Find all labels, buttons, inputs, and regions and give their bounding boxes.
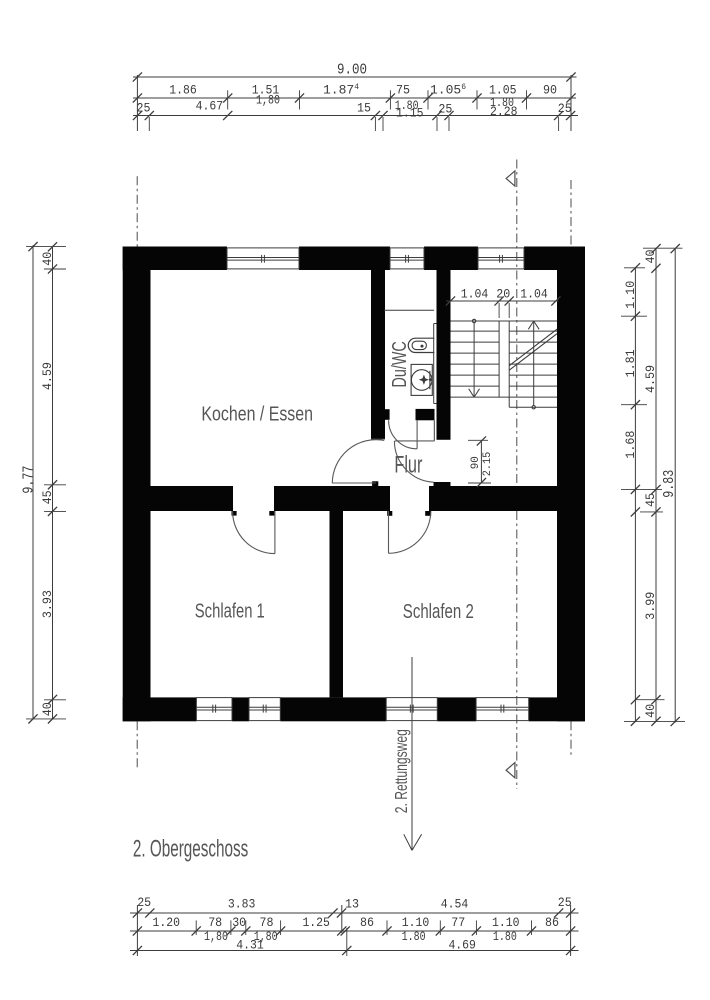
svg-text:2.28: 2.28	[490, 104, 518, 119]
svg-text:25: 25	[558, 895, 572, 910]
svg-text:2. Rettungsweg: 2. Rettungsweg	[391, 729, 411, 813]
svg-text:1.874: 1.874	[323, 83, 359, 98]
svg-text:1.25: 1.25	[302, 915, 330, 930]
svg-text:9.00: 9.00	[337, 63, 367, 79]
svg-text:1.80: 1.80	[493, 929, 517, 944]
svg-text:4.69: 4.69	[448, 937, 476, 952]
svg-text:2.15: 2.15	[482, 452, 494, 477]
svg-text:Du/WC: Du/WC	[388, 341, 411, 387]
svg-text:1,80: 1,80	[204, 929, 228, 944]
svg-text:1.04: 1.04	[520, 287, 548, 302]
svg-text:1.10: 1.10	[623, 281, 638, 309]
svg-text:30: 30	[232, 915, 246, 930]
svg-text:1.81: 1.81	[623, 349, 638, 377]
svg-text:Schlafen 1: Schlafen 1	[195, 600, 265, 623]
svg-text:1.80: 1.80	[402, 929, 426, 944]
svg-text:78: 78	[260, 915, 274, 930]
svg-text:1.86: 1.86	[169, 83, 197, 98]
svg-text:2. Obergeschoss: 2. Obergeschoss	[133, 836, 248, 863]
svg-text:77: 77	[451, 915, 465, 930]
svg-text:90: 90	[470, 456, 482, 469]
svg-text:90: 90	[543, 83, 557, 98]
svg-text:1,80: 1,80	[256, 93, 280, 108]
svg-text:40: 40	[40, 252, 55, 266]
svg-text:1.68: 1.68	[623, 431, 638, 459]
svg-text:1.056: 1.056	[430, 83, 466, 98]
svg-text:1.04: 1.04	[461, 287, 489, 302]
svg-text:78: 78	[208, 915, 222, 930]
svg-text:4.54: 4.54	[441, 896, 469, 911]
svg-text:15: 15	[357, 101, 371, 116]
svg-text:3.99: 3.99	[643, 592, 658, 620]
svg-text:20: 20	[496, 287, 510, 302]
svg-text:Flur: Flur	[394, 451, 422, 478]
svg-text:45: 45	[643, 493, 658, 507]
svg-text:25: 25	[137, 895, 151, 910]
svg-text:4.59: 4.59	[40, 362, 55, 390]
svg-text:1.20: 1.20	[153, 915, 181, 930]
svg-text:45: 45	[40, 490, 55, 504]
svg-text:40: 40	[643, 250, 658, 264]
svg-text:9.83: 9.83	[662, 470, 678, 498]
svg-text:40: 40	[40, 702, 55, 716]
svg-text:1.10: 1.10	[492, 915, 520, 930]
svg-text:9.77: 9.77	[21, 466, 37, 494]
svg-text:3.93: 3.93	[40, 590, 55, 618]
svg-text:4.31: 4.31	[236, 937, 264, 952]
svg-text:Kochen / Essen: Kochen / Essen	[201, 402, 313, 425]
svg-text:25: 25	[438, 102, 452, 117]
svg-text:86: 86	[545, 915, 559, 930]
svg-text:1.10: 1.10	[402, 915, 430, 930]
svg-text:13: 13	[345, 896, 359, 911]
svg-text:75: 75	[396, 83, 410, 98]
svg-text:4.59: 4.59	[643, 365, 658, 393]
svg-text:86: 86	[360, 915, 374, 930]
svg-text:Schlafen 2: Schlafen 2	[403, 600, 474, 623]
svg-text:3.83: 3.83	[228, 896, 256, 911]
svg-text:1.15: 1.15	[396, 106, 424, 121]
svg-text:4.67: 4.67	[196, 99, 224, 114]
svg-text:25: 25	[137, 101, 151, 116]
svg-text:40: 40	[643, 704, 658, 718]
svg-text:25: 25	[558, 101, 572, 116]
